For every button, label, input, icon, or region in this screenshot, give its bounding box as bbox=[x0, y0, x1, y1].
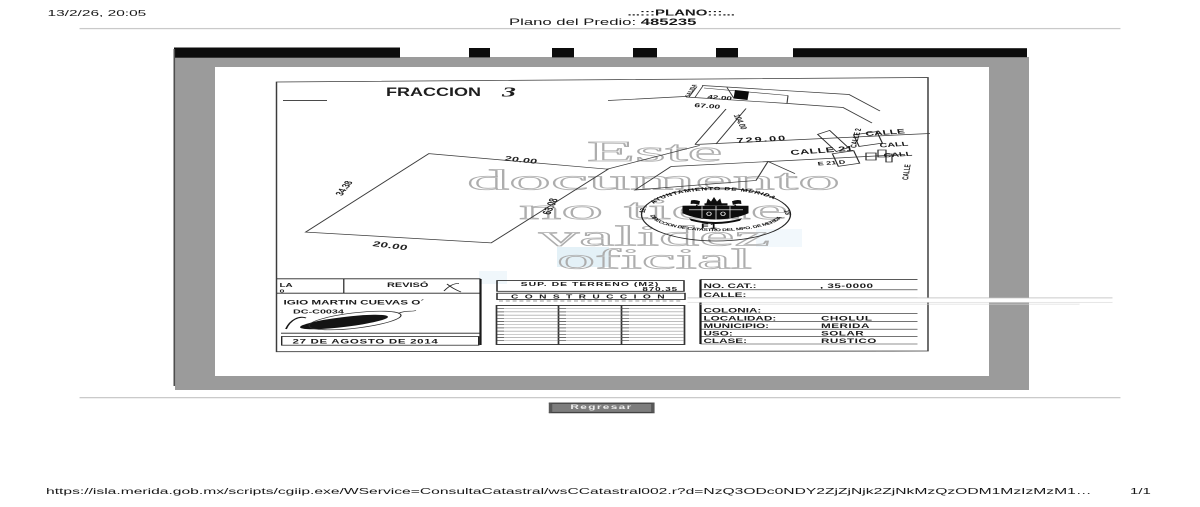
svg-text:SUP. DE TERRENO (M2): SUP. DE TERRENO (M2) bbox=[521, 281, 660, 288]
svg-text:REVISÓ: REVISÓ bbox=[387, 281, 429, 288]
svg-text:0: 0 bbox=[279, 288, 284, 294]
svg-text:, 35-0000: , 35-0000 bbox=[820, 282, 874, 289]
svg-text:27 DE AGOSTO DE 2014: 27 DE AGOSTO DE 2014 bbox=[292, 338, 438, 345]
svg-text:oficial: oficial bbox=[557, 243, 752, 275]
svg-text:IGIO MARTIN CUEVAS O´: IGIO MARTIN CUEVAS O´ bbox=[283, 298, 424, 305]
svg-text:CLASE:: CLASE: bbox=[703, 337, 747, 344]
svg-text:F1: F1 bbox=[701, 223, 718, 230]
svg-text:LOCALIDAD:: LOCALIDAD: bbox=[703, 314, 776, 321]
svg-text:3: 3 bbox=[501, 85, 516, 100]
svg-text:CONSTRUCCION: CONSTRUCCION bbox=[511, 294, 671, 300]
svg-text:Este: Este bbox=[587, 136, 722, 168]
svg-text:NO. CAT.:: NO. CAT.: bbox=[703, 282, 756, 289]
svg-text:RUSTICO: RUSTICO bbox=[821, 337, 877, 344]
svg-text:SOLAR: SOLAR bbox=[821, 329, 864, 336]
svg-text:USO:: USO: bbox=[703, 329, 732, 336]
svg-text:CHOLUL: CHOLUL bbox=[821, 314, 872, 321]
svg-text:COLONIA:: COLONIA: bbox=[703, 306, 761, 313]
svg-text:870.35: 870.35 bbox=[642, 286, 678, 292]
svg-text:DC-C0034: DC-C0034 bbox=[293, 308, 344, 315]
svg-text:documento: documento bbox=[467, 164, 840, 196]
svg-text:FRACCION: FRACCION bbox=[386, 85, 481, 99]
